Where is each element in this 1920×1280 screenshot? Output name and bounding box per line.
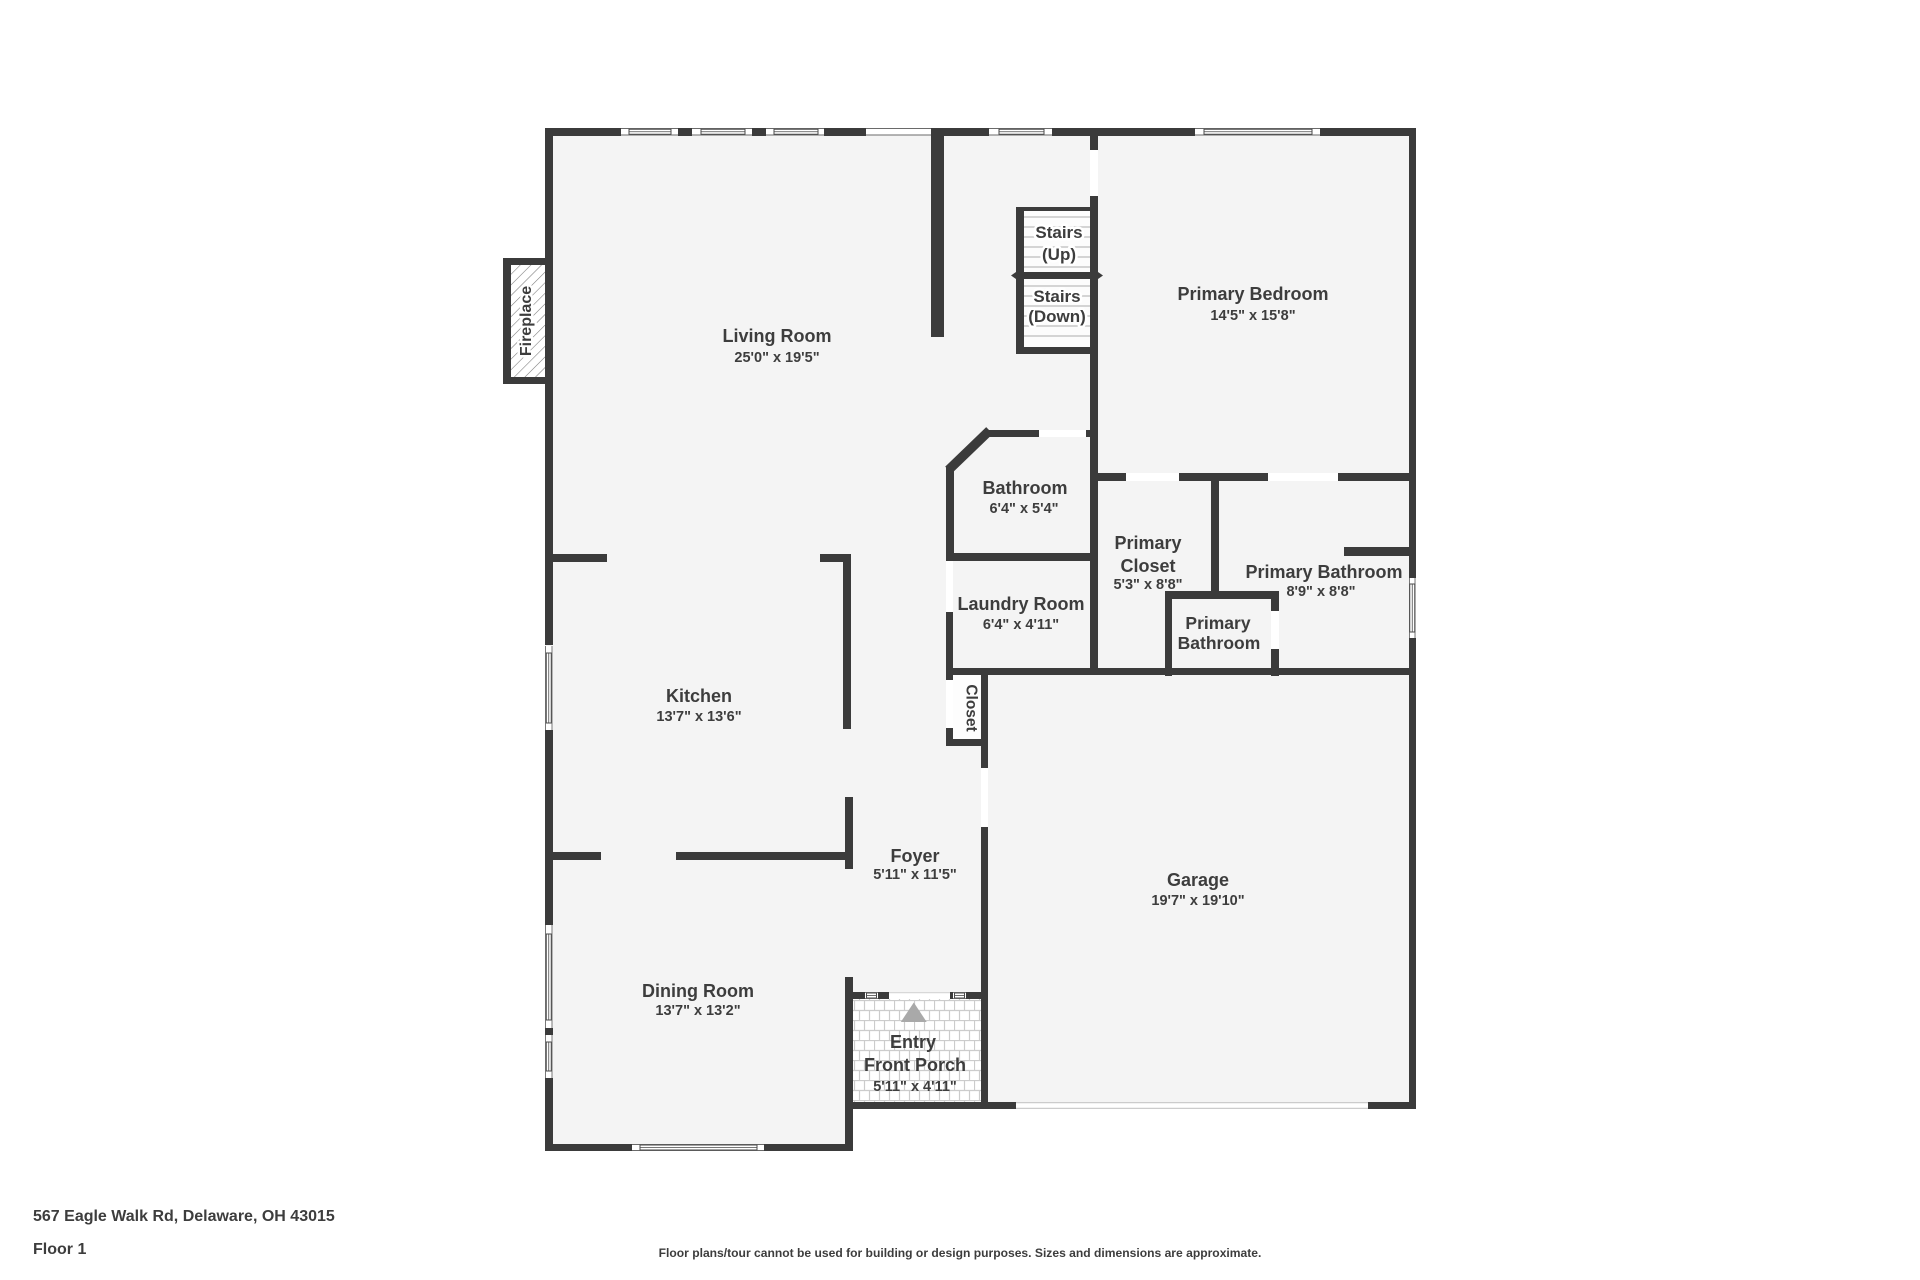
svg-text:19'7" x 19'10": 19'7" x 19'10"	[1151, 893, 1244, 909]
svg-text:5'3" x 8'8": 5'3" x 8'8"	[1113, 577, 1182, 593]
svg-text:Living Room: Living Room	[723, 326, 832, 346]
svg-text:Garage: Garage	[1167, 870, 1229, 890]
svg-text:Primary: Primary	[1185, 613, 1250, 633]
svg-text:25'0" x 19'5": 25'0" x 19'5"	[734, 350, 819, 366]
svg-text:Front Porch: Front Porch	[864, 1055, 966, 1075]
svg-text:5'11" x 11'5": 5'11" x 11'5"	[873, 867, 957, 883]
svg-text:Bathroom: Bathroom	[1178, 633, 1261, 653]
svg-text:14'5" x 15'8": 14'5" x 15'8"	[1210, 308, 1295, 324]
svg-text:Floor 1: Floor 1	[33, 1241, 86, 1258]
svg-text:Foyer: Foyer	[890, 846, 939, 866]
svg-text:Primary: Primary	[1114, 533, 1181, 553]
svg-text:Dining Room: Dining Room	[642, 981, 754, 1001]
svg-text:567 Eagle Walk Rd, Delaware, O: 567 Eagle Walk Rd, Delaware, OH 43015	[33, 1208, 335, 1225]
svg-text:Laundry Room: Laundry Room	[957, 594, 1084, 614]
svg-text:Stairs: Stairs	[1035, 223, 1082, 242]
svg-text:Entry: Entry	[890, 1032, 936, 1052]
svg-text:8'9" x 8'8": 8'9" x 8'8"	[1286, 584, 1355, 600]
svg-text:13'7" x 13'6": 13'7" x 13'6"	[656, 709, 741, 725]
svg-text:13'7" x 13'2": 13'7" x 13'2"	[655, 1003, 740, 1019]
svg-text:Bathroom: Bathroom	[983, 478, 1068, 498]
svg-text:6'4" x 4'11": 6'4" x 4'11"	[983, 617, 1059, 633]
svg-text:(Down): (Down)	[1028, 307, 1086, 326]
svg-text:Fireplace: Fireplace	[518, 286, 535, 356]
svg-text:Primary Bathroom: Primary Bathroom	[1245, 562, 1402, 582]
svg-text:Floor plans/tour cannot be use: Floor plans/tour cannot be used for buil…	[659, 1246, 1262, 1260]
svg-text:5'11" x 4'11": 5'11" x 4'11"	[873, 1079, 957, 1095]
svg-text:Stairs: Stairs	[1033, 287, 1080, 306]
svg-text:6'4" x 5'4": 6'4" x 5'4"	[989, 501, 1058, 517]
svg-text:Primary Bedroom: Primary Bedroom	[1177, 284, 1328, 304]
svg-text:Closet: Closet	[1120, 556, 1175, 576]
svg-text:Closet: Closet	[963, 684, 980, 731]
svg-text:(Up): (Up)	[1042, 245, 1076, 264]
svg-text:Kitchen: Kitchen	[666, 686, 732, 706]
